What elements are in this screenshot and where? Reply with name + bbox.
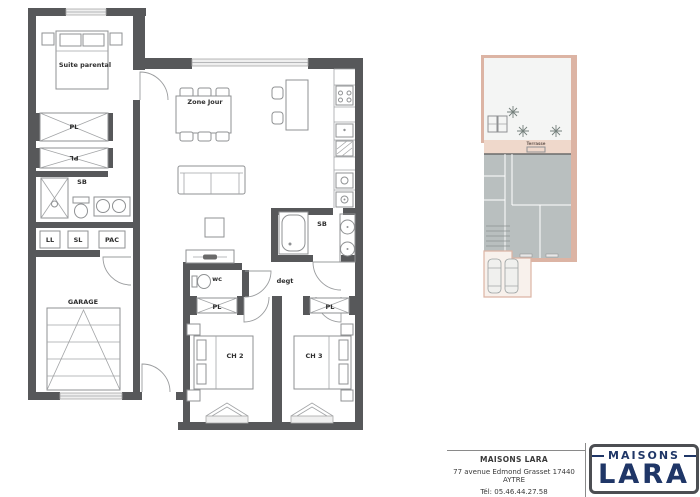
drawing-sheet: Suite parental PL PL SB LL SL PAC GARAGE… xyxy=(0,0,700,497)
room-label-zone-jour: Zone Jour xyxy=(187,98,223,106)
room-label-pl-4: PL xyxy=(326,303,335,311)
logo-dash-left xyxy=(592,455,604,457)
site-border-right xyxy=(571,143,577,260)
room-label-sb-2: SB xyxy=(317,220,327,228)
company-name: MAISONS LARA xyxy=(443,455,585,464)
house-window-mark xyxy=(520,254,532,257)
terrasse-label: Terrasse xyxy=(526,141,545,146)
titleblock-divider-horizontal xyxy=(447,450,585,451)
bedroom2-furniture xyxy=(187,324,253,401)
logo-dash-right xyxy=(684,455,696,457)
tv-icon xyxy=(203,255,217,260)
room-label-ch3: CH 3 xyxy=(306,352,323,360)
wc-fixtures xyxy=(192,275,211,289)
maisons-lara-logo: MAISONS LARA xyxy=(589,444,699,494)
room-label-degt: degt xyxy=(277,277,294,285)
site-plan: Terrasse xyxy=(481,55,577,297)
kitchen-counter xyxy=(334,69,355,208)
suite-parentale-furniture xyxy=(42,31,122,89)
room-label-garage: GARAGE xyxy=(68,298,98,306)
company-phone: Tél: 05.46.44.27.58 xyxy=(443,488,585,496)
living-room-furniture xyxy=(178,166,245,263)
room-label-ch2: CH 2 xyxy=(227,352,244,360)
room-label-suite-parental: Suite parental xyxy=(59,61,111,69)
room-label-pl-1: PL xyxy=(70,123,79,131)
house-footprint xyxy=(484,154,571,258)
room-label-ll: LL xyxy=(46,236,54,244)
room-label-pl-2: PL xyxy=(70,154,79,162)
dining-set xyxy=(176,88,231,141)
titleblock-divider-vertical xyxy=(585,443,586,497)
room-label-sl: SL xyxy=(74,236,83,244)
floor-plan: Suite parental PL PL SB LL SL PAC GARAGE… xyxy=(28,8,363,430)
bedroom3-furniture xyxy=(294,324,353,401)
room-label-pac: PAC xyxy=(105,236,119,244)
floor-plan-drawing: Suite parental PL PL SB LL SL PAC GARAGE… xyxy=(0,0,700,497)
logo-word-lara: LARA xyxy=(598,461,690,488)
garage-door xyxy=(47,308,120,390)
site-border-bottom xyxy=(531,258,577,262)
house-window-mark xyxy=(546,254,558,257)
kitchen-island xyxy=(272,80,308,130)
room-label-sb-1: SB xyxy=(77,178,87,186)
titleblock-info: MAISONS LARA 77 avenue Edmond Grasset 17… xyxy=(443,455,585,496)
room-label-wc: wc xyxy=(212,275,222,283)
room-label-pl-3: PL xyxy=(213,303,222,311)
company-address: 77 avenue Edmond Grasset 17440 AYTRE xyxy=(443,468,585,484)
